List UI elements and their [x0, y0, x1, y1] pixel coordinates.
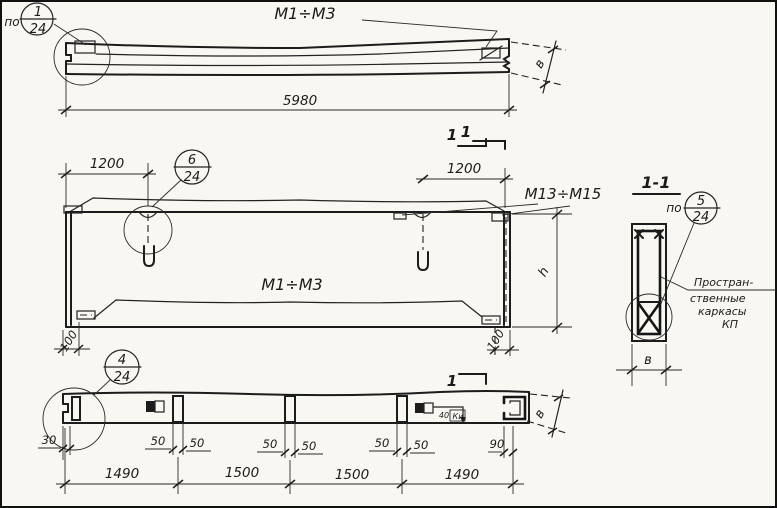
section-title: 1-1	[642, 173, 671, 192]
cut-label: 1	[461, 123, 471, 141]
embed-dim-text: 40	[439, 411, 449, 420]
embed-washer-1a	[146, 401, 155, 412]
dim-text: 50	[302, 439, 317, 453]
embed-mark-text: Ки	[453, 412, 464, 421]
balloon-denominator: 24	[114, 370, 131, 385]
note-line-1: Простран-	[694, 276, 753, 289]
dim-text: 50	[263, 437, 278, 451]
dim-text: 90	[490, 437, 505, 451]
balloon-numerator: 4	[118, 353, 126, 368]
balloon-prefix: по	[666, 201, 681, 215]
drawing-sheet: 1 24 по М1÷М3 в 5980 1	[0, 0, 777, 508]
chain-dim-2: 1500	[225, 465, 259, 481]
dim-length-text: 5980	[283, 93, 317, 109]
cut-label: 1	[447, 372, 457, 390]
dim-text: 50	[151, 434, 166, 448]
chain-dim-3: 1500	[335, 467, 369, 483]
cut-label: 1	[447, 126, 457, 144]
panel-drawing: 1 24 по М1÷М3 в 5980 1	[0, 0, 777, 508]
dim-text: 50	[375, 436, 390, 450]
dim-width-letter: в	[644, 353, 652, 368]
embed-washer-2a	[415, 403, 424, 413]
dim-text: 50	[414, 438, 429, 452]
mark-label-m13-m15: М13÷М15	[525, 185, 602, 203]
note-line-2: ственные	[690, 292, 746, 305]
dim-text: 50	[190, 436, 205, 450]
chain-dim-1: 1490	[105, 466, 139, 482]
dim-text: 1200	[447, 161, 481, 177]
balloon-denominator: 24	[30, 22, 47, 37]
balloon-denominator: 24	[693, 210, 710, 225]
chain-dim-4: 1490	[445, 467, 479, 483]
balloon-numerator: 1	[34, 5, 42, 20]
dim-text: 1200	[90, 156, 124, 172]
balloon-numerator: 5	[697, 194, 705, 209]
mark-label-top: М1÷М3	[274, 4, 335, 23]
note-line-3: каркасы	[698, 305, 747, 318]
dim-text: 30	[42, 433, 57, 447]
balloon-denominator: 24	[184, 170, 201, 185]
mark-label-mid: М1÷М3	[261, 275, 322, 294]
balloon-numerator: 6	[188, 153, 196, 168]
note-line-4: КП	[722, 318, 738, 331]
balloon-prefix: по	[4, 15, 19, 29]
